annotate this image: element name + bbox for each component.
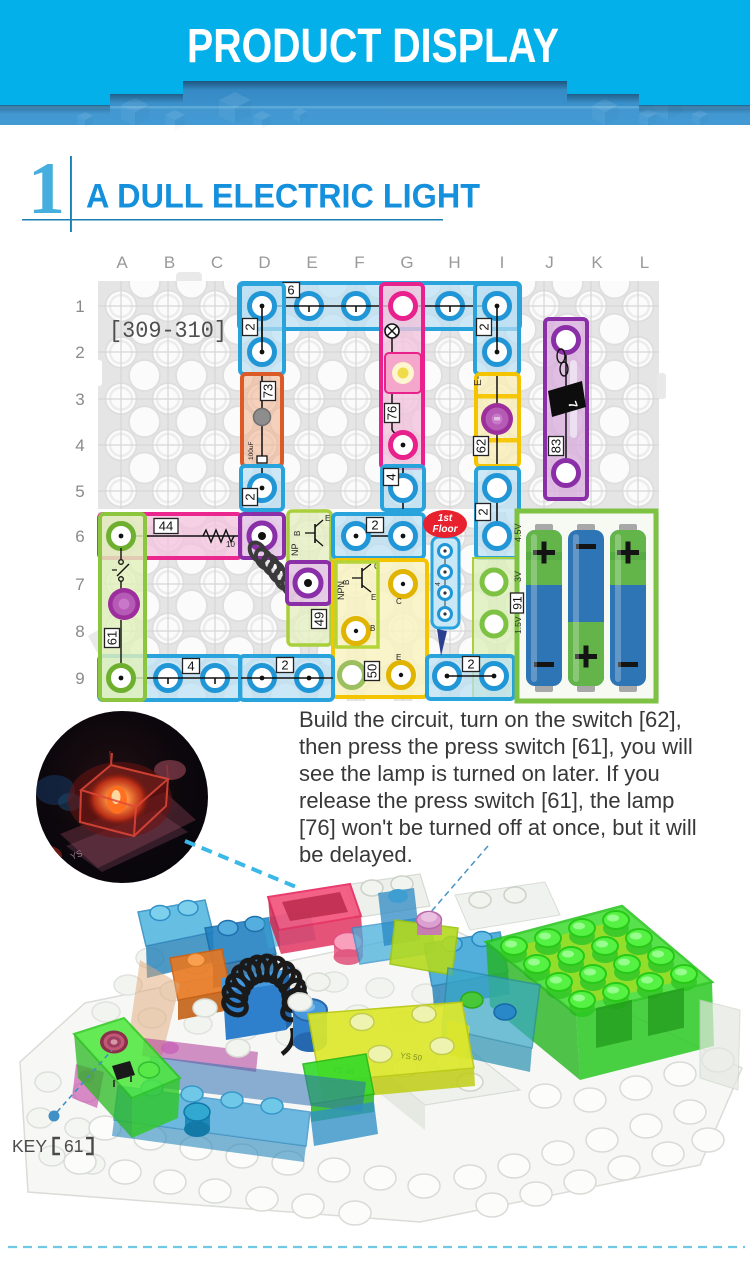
svg-text:7: 7: [75, 575, 84, 594]
svg-text:B: B: [164, 253, 175, 272]
svg-text:2: 2: [243, 493, 258, 500]
svg-text:B: B: [370, 624, 375, 633]
svg-text:E: E: [396, 653, 401, 662]
svg-text:62: 62: [474, 439, 489, 453]
svg-text:4: 4: [435, 582, 442, 586]
svg-text:C: C: [211, 253, 223, 272]
svg-text:E: E: [325, 514, 330, 523]
svg-text:2: 2: [281, 658, 288, 673]
svg-text:2: 2: [243, 323, 258, 330]
svg-text:1st: 1st: [438, 513, 453, 524]
svg-text:PRODUCT DISPLAY: PRODUCT DISPLAY: [187, 20, 559, 73]
svg-text:4: 4: [187, 659, 194, 674]
svg-text:76: 76: [385, 406, 400, 420]
svg-text:3: 3: [75, 390, 84, 409]
svg-text:50: 50: [365, 664, 380, 678]
svg-text:K: K: [591, 253, 603, 272]
svg-text:3V: 3V: [513, 571, 523, 582]
svg-text:1: 1: [75, 297, 84, 316]
svg-text:2: 2: [477, 323, 492, 330]
svg-text:4.5V: 4.5V: [513, 523, 523, 542]
svg-text:2: 2: [75, 343, 84, 362]
svg-text:10: 10: [226, 540, 235, 549]
svg-text:D: D: [258, 253, 270, 272]
svg-text:9: 9: [75, 669, 84, 688]
svg-text:H: H: [448, 253, 460, 272]
svg-text:73: 73: [261, 384, 276, 398]
svg-text:F: F: [354, 253, 364, 272]
svg-text:61: 61: [105, 631, 120, 645]
svg-text:L: L: [640, 253, 649, 272]
svg-text:4: 4: [75, 436, 84, 455]
svg-text:91: 91: [510, 596, 524, 610]
svg-text:6: 6: [287, 283, 294, 298]
svg-text:2: 2: [371, 518, 378, 533]
svg-text:5: 5: [75, 482, 84, 501]
svg-text:G: G: [400, 253, 413, 272]
svg-text:44: 44: [159, 519, 173, 534]
svg-text:1: 1: [28, 148, 65, 230]
svg-text:1.5V: 1.5V: [513, 616, 523, 634]
svg-text:[309-310]: [309-310]: [109, 318, 227, 344]
svg-text:E: E: [306, 253, 317, 272]
svg-text:4: 4: [384, 473, 399, 480]
svg-text:100uF: 100uF: [248, 442, 255, 460]
svg-text:E-: E-: [473, 376, 484, 386]
svg-text:A DULL ELECTRIC LIGHT: A DULL ELECTRIC LIGHT: [86, 178, 480, 216]
svg-text:2: 2: [467, 657, 474, 672]
svg-text:I: I: [500, 253, 505, 272]
svg-text:A: A: [116, 253, 128, 272]
svg-text:Floor: Floor: [433, 524, 459, 535]
svg-text:B: B: [293, 531, 302, 536]
svg-text:6: 6: [75, 527, 84, 546]
svg-text:8: 8: [75, 622, 84, 641]
svg-text:49: 49: [312, 612, 327, 626]
svg-text:J: J: [545, 253, 554, 272]
svg-text:2: 2: [476, 508, 491, 515]
svg-text:NP: NP: [290, 543, 300, 556]
svg-text:KEY: KEY: [12, 1136, 47, 1156]
svg-text:83: 83: [549, 439, 564, 453]
svg-text:61: 61: [64, 1136, 83, 1156]
svg-text:C: C: [396, 597, 402, 606]
svg-text:E: E: [371, 593, 376, 602]
